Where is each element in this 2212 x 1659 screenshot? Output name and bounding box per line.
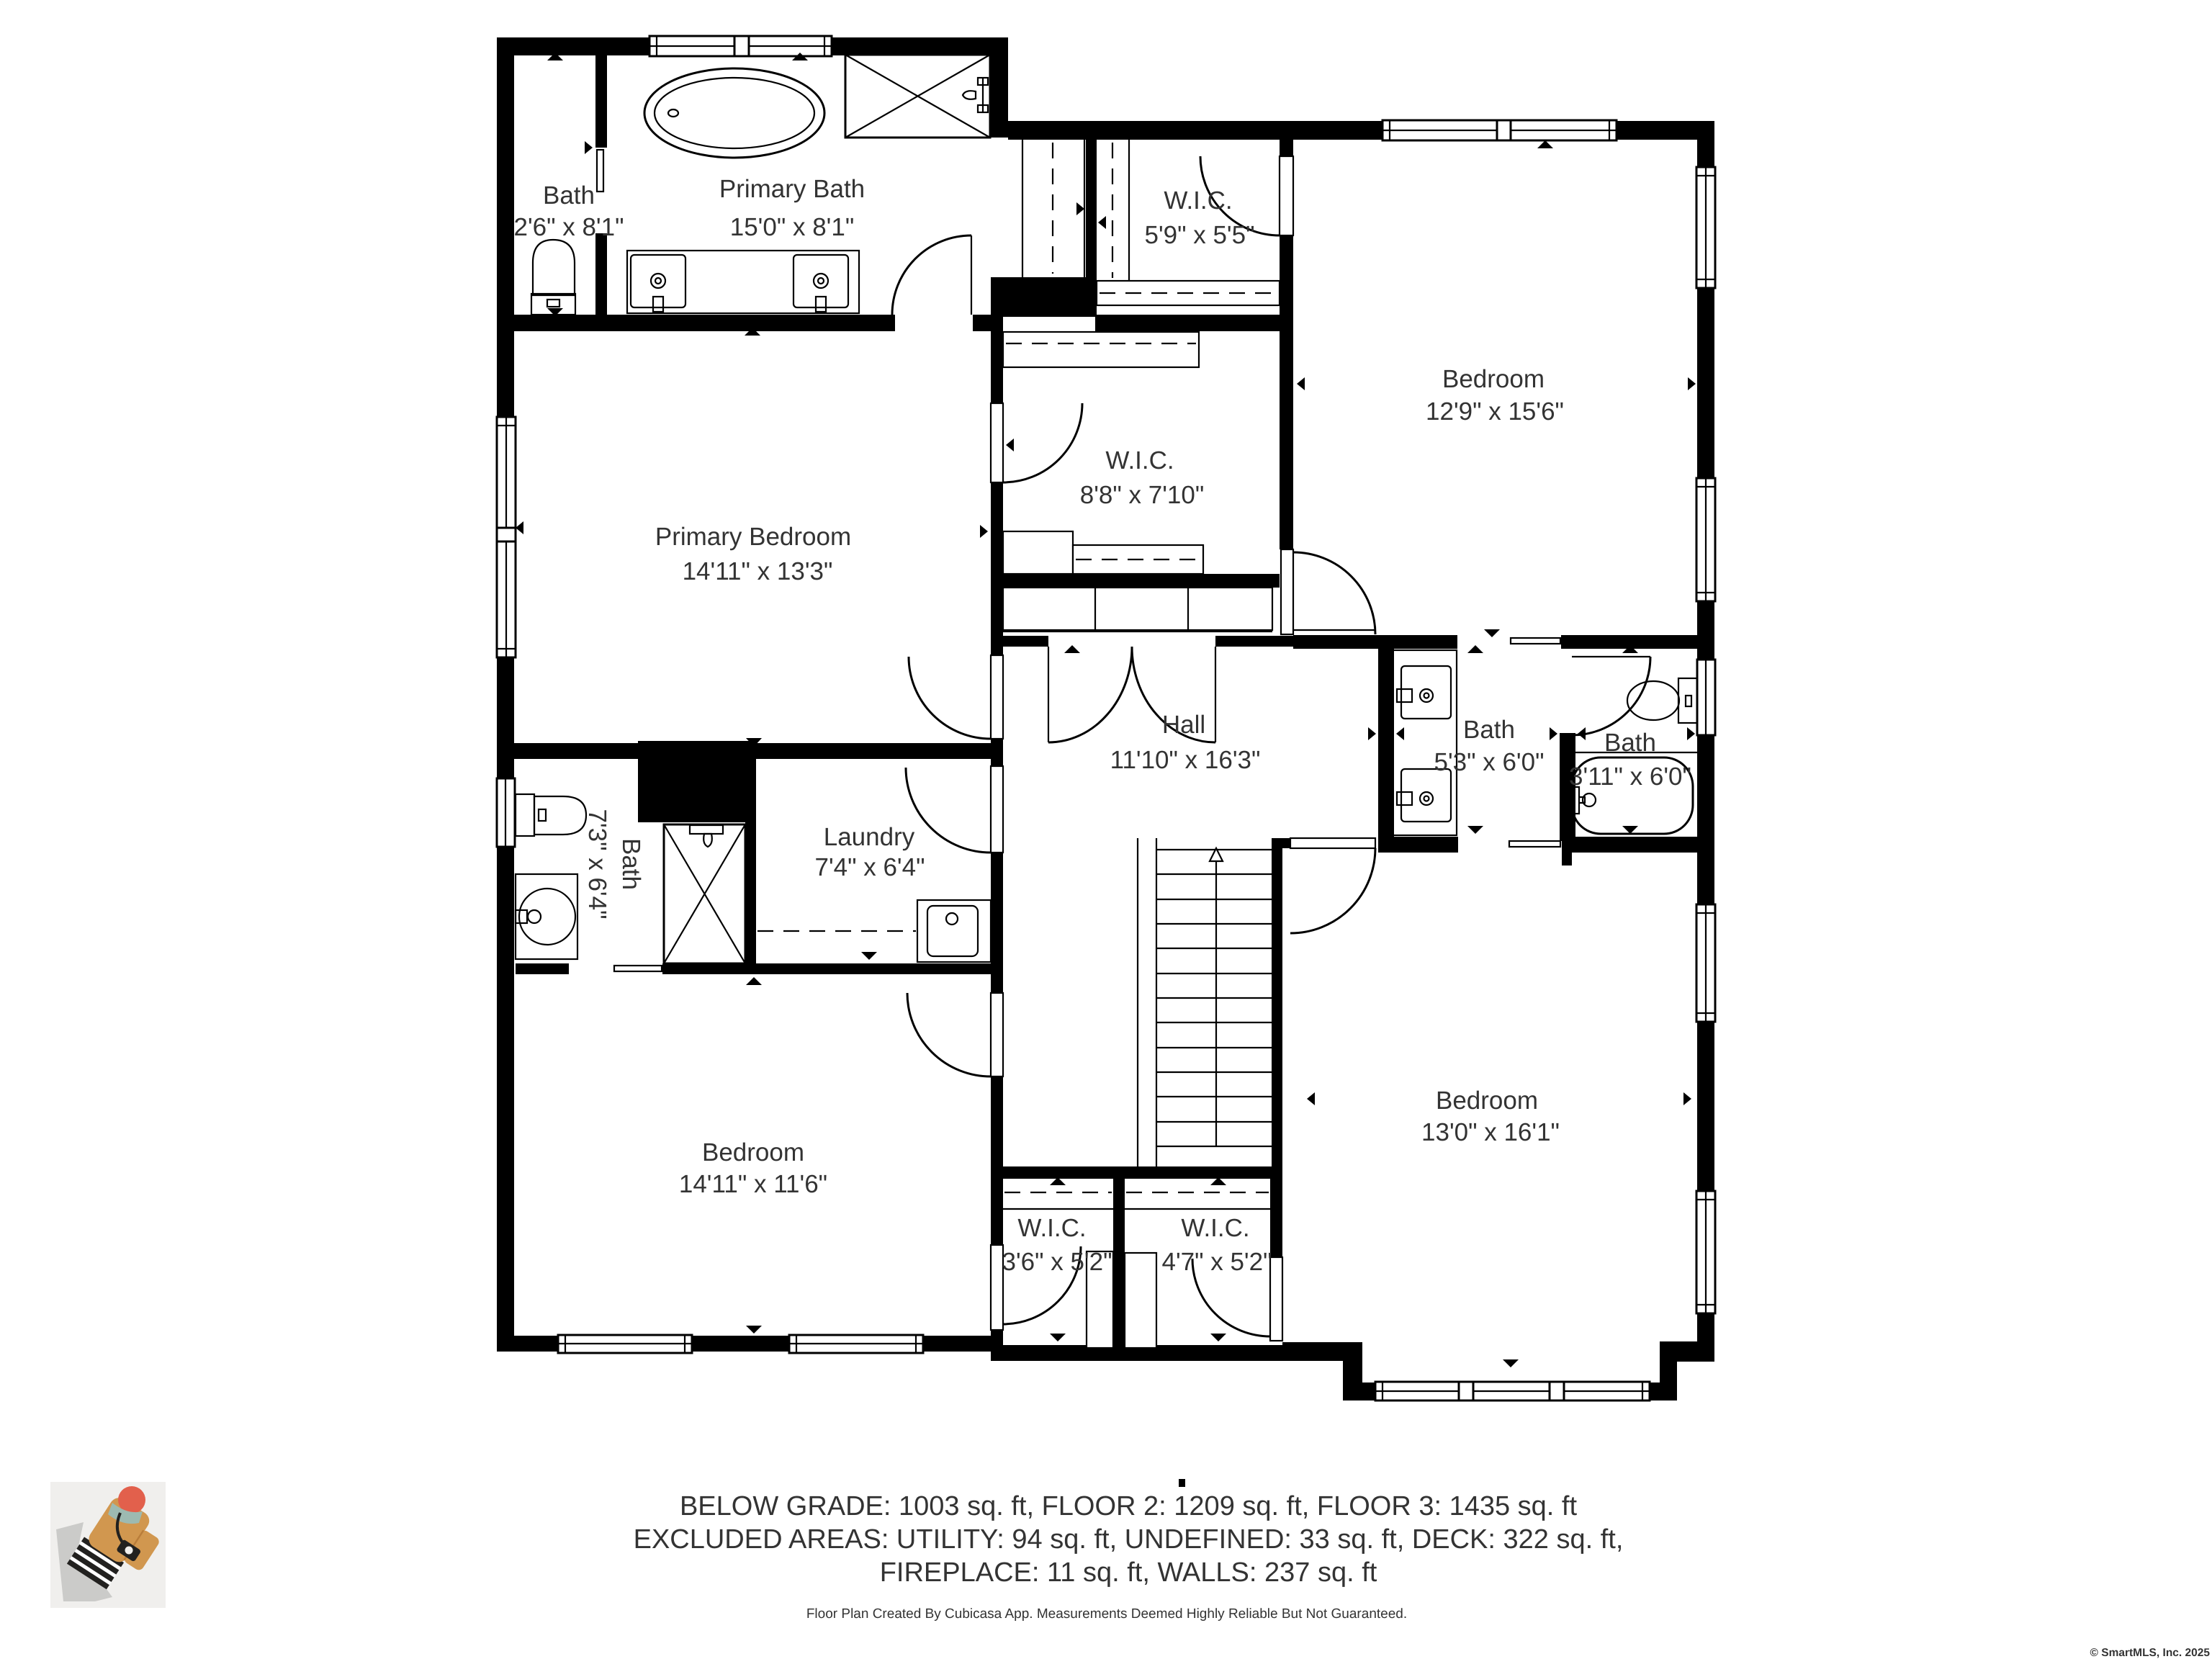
svg-text:Primary Bath: Primary Bath <box>719 175 865 203</box>
svg-text:5'3" x 6'0": 5'3" x 6'0" <box>1434 748 1544 776</box>
svg-text:FIREPLACE: 11 sq. ft, WALLS: 2: FIREPLACE: 11 sq. ft, WALLS: 237 sq. ft <box>880 1557 1377 1588</box>
svg-text:Bath: Bath <box>1463 716 1515 744</box>
svg-text:13'0" x 16'1": 13'0" x 16'1" <box>1421 1118 1560 1146</box>
svg-text:Bedroom: Bedroom <box>1442 365 1545 393</box>
svg-text:11'10" x 16'3": 11'10" x 16'3" <box>1110 746 1261 774</box>
svg-text:Floor Plan Created By Cubicasa: Floor Plan Created By Cubicasa App. Meas… <box>806 1606 1407 1622</box>
svg-text:14'11" x 11'6": 14'11" x 11'6" <box>679 1170 827 1198</box>
svg-text:BELOW GRADE: 1003 sq. ft, FLOO: BELOW GRADE: 1003 sq. ft, FLOOR 2: 1209 … <box>680 1491 1578 1521</box>
svg-text:2'6" x 8'1": 2'6" x 8'1" <box>513 213 624 241</box>
svg-text:3'11" x 6'0": 3'11" x 6'0" <box>1569 763 1691 791</box>
svg-text:14'11" x 13'3": 14'11" x 13'3" <box>683 557 833 585</box>
svg-text:Bedroom: Bedroom <box>1436 1087 1538 1115</box>
svg-text:W.I.C.: W.I.C. <box>1181 1214 1249 1242</box>
svg-text:4'7" x 5'2": 4'7" x 5'2" <box>1161 1248 1272 1276</box>
svg-text:5'9" x 5'5": 5'9" x 5'5" <box>1144 221 1254 249</box>
svg-text:Laundry: Laundry <box>824 823 915 851</box>
svg-text:8'8" x 7'10": 8'8" x 7'10" <box>1080 481 1205 509</box>
svg-text:EXCLUDED AREAS: UTILITY: 94 sq: EXCLUDED AREAS: UTILITY: 94 sq. ft, UNDE… <box>634 1524 1624 1555</box>
svg-text:Bedroom: Bedroom <box>702 1138 804 1166</box>
svg-text:7'4" x 6'4": 7'4" x 6'4" <box>814 853 925 881</box>
svg-text:3'6" x 5'2": 3'6" x 5'2" <box>1002 1248 1112 1276</box>
svg-text:Bath: Bath <box>543 181 595 210</box>
svg-text:W.I.C.: W.I.C. <box>1017 1214 1086 1242</box>
svg-text:Hall: Hall <box>1162 711 1205 739</box>
svg-text:Primary Bedroom: Primary Bedroom <box>655 523 851 551</box>
svg-text:Bath: Bath <box>1604 729 1656 757</box>
svg-text:15'0" x 8'1": 15'0" x 8'1" <box>730 213 855 241</box>
svg-text:W.I.C.: W.I.C. <box>1164 186 1232 215</box>
svg-text:7'3" x 6'4": 7'3" x 6'4" <box>583 809 611 919</box>
svg-text:Bath: Bath <box>617 838 645 890</box>
svg-text:12'9" x 15'6": 12'9" x 15'6" <box>1426 397 1564 426</box>
svg-text:© SmartMLS, Inc. 2025: © SmartMLS, Inc. 2025 <box>2090 1647 2211 1659</box>
svg-text:W.I.C.: W.I.C. <box>1105 446 1174 475</box>
